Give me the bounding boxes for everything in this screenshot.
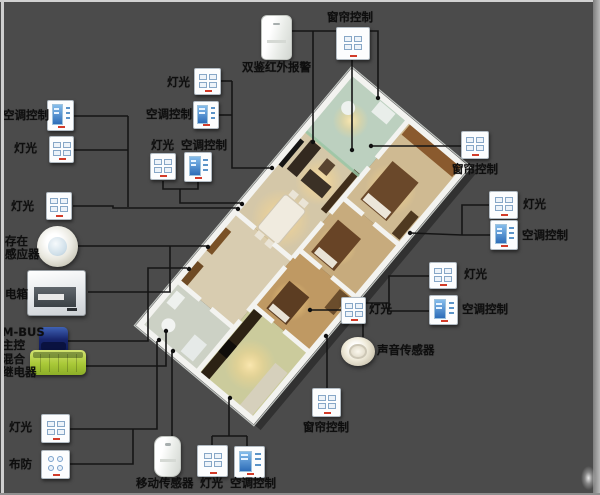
light-top-left-2-label: 灯光 xyxy=(11,200,34,213)
device-layer: 窗帘控制双鉴红外报警空调控制灯光灯光灯光空调控制灯光空调控制窗帘控制灯光空调控制… xyxy=(0,0,600,495)
curtain-switch-panel-icon xyxy=(312,388,341,417)
light-switch-panel-icon xyxy=(197,445,228,477)
frame-left-edge xyxy=(1,0,4,495)
light-bottom-left-label: 灯光 xyxy=(9,421,32,434)
curtain-switch-panel-icon xyxy=(336,27,370,60)
hybrid-relay-label: 混合 继电器 xyxy=(2,353,37,379)
light-switch-panel-icon xyxy=(46,192,72,220)
curtain-control-right-label: 窗帘控制 xyxy=(452,163,498,176)
light-center-label: 灯光 xyxy=(151,139,174,152)
ac-control-panel-icon xyxy=(234,446,265,478)
sound-sensor-label: 声音传感器 xyxy=(377,344,435,357)
electrical-box-icon xyxy=(27,270,86,316)
frame-right-edge xyxy=(593,0,600,495)
relay-module-icon xyxy=(30,350,86,375)
infrared-detector-icon xyxy=(261,15,292,60)
light-switch-panel-icon xyxy=(49,136,74,163)
ac-control-right-lower-label: 空调控制 xyxy=(462,303,508,316)
light-top-left-1-label: 灯光 xyxy=(14,142,37,155)
light-switch-panel-icon xyxy=(489,191,518,219)
light-switch-panel-icon xyxy=(194,68,221,95)
ac-control-center-label: 空调控制 xyxy=(181,139,227,152)
ac-control-panel-icon xyxy=(490,220,518,250)
light-switch-panel-icon xyxy=(341,297,366,324)
light-right-label: 灯光 xyxy=(523,198,546,211)
arming-switch-panel-icon xyxy=(41,450,70,479)
smart-home-diagram: { "canvas": { "background_color": "#4b4b… xyxy=(0,0,600,495)
ac-control-top-center-label: 空调控制 xyxy=(146,108,192,121)
sound-sensor-icon xyxy=(341,337,375,366)
light-switch-panel-icon xyxy=(150,153,176,180)
curtain-control-top-label: 窗帘控制 xyxy=(327,11,373,24)
light-bottom-label: 灯光 xyxy=(200,477,223,490)
ac-control-bottom-label: 空调控制 xyxy=(230,477,276,490)
arming-switch-label: 布防 xyxy=(9,458,32,471)
ac-control-panel-icon xyxy=(193,101,219,129)
motion-sensor-label: 移动传感器 xyxy=(136,477,194,490)
presence-sensor-label: 存在 感应器 xyxy=(5,235,40,261)
ac-control-right-label: 空调控制 xyxy=(522,229,568,242)
frame-top-edge xyxy=(0,0,600,2)
ac-control-top-left-label: 空调控制 xyxy=(3,109,49,122)
dual-infrared-alarm-label: 双鉴红外报警 xyxy=(242,61,311,74)
ac-control-panel-icon xyxy=(184,152,212,182)
corner-smudge xyxy=(581,466,596,490)
light-switch-panel-icon xyxy=(41,414,70,443)
light-switch-panel-icon xyxy=(429,262,457,289)
mbus-master-label: M-BUS 主控 xyxy=(2,326,45,352)
light-top-center-label: 灯光 xyxy=(167,76,190,89)
presence-sensor-icon xyxy=(37,226,78,267)
light-inner-label: 灯光 xyxy=(369,303,392,316)
ac-control-panel-icon xyxy=(47,100,74,131)
curtain-control-bottom-label: 窗帘控制 xyxy=(303,421,349,434)
ac-control-panel-icon xyxy=(429,295,458,325)
curtain-switch-panel-icon xyxy=(461,131,489,159)
motion-sensor-icon xyxy=(154,436,181,477)
light-right-lower-label: 灯光 xyxy=(464,268,487,281)
electrical-box-label: 电箱 xyxy=(5,288,28,301)
